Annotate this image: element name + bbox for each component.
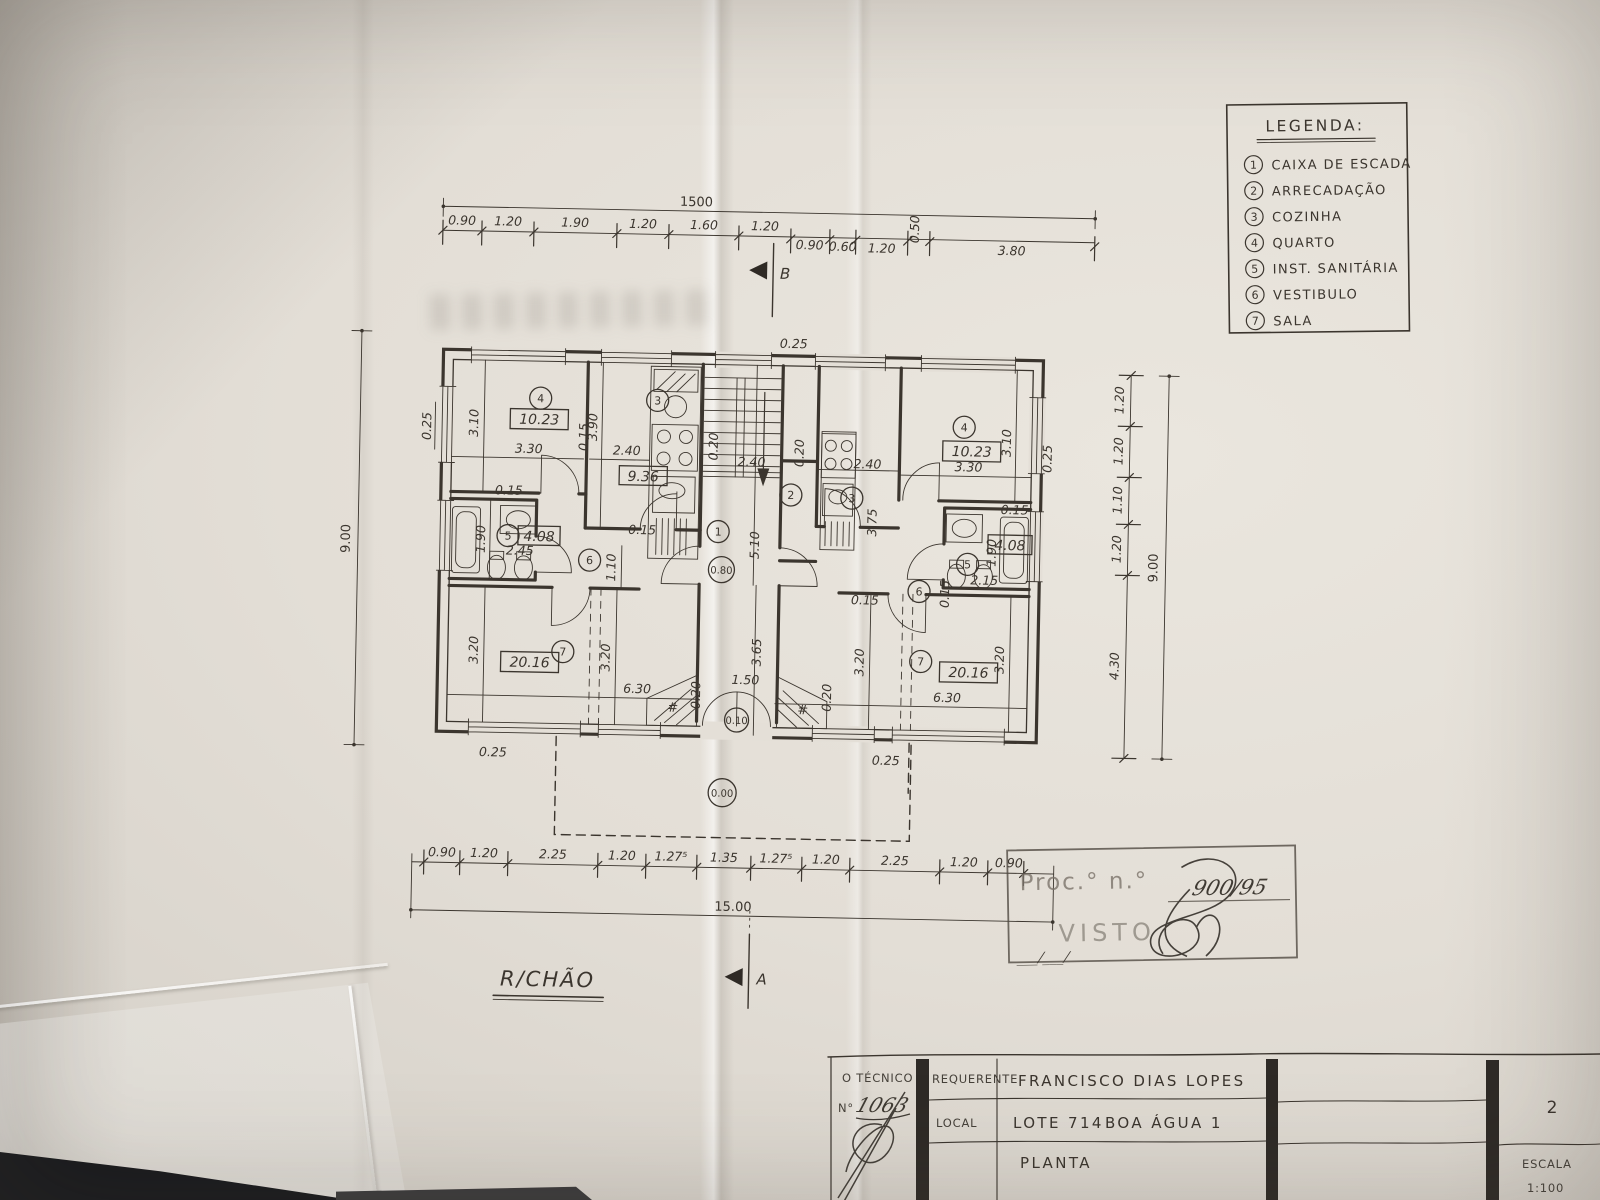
- room-number: 3: [654, 394, 661, 407]
- dim-total: 9.00: [1146, 553, 1162, 582]
- requester-value: FRANCISCO DIAS LOPES: [1018, 1072, 1246, 1090]
- dim-seg: 1.20: [608, 848, 636, 864]
- dim-seg: 0.90: [995, 855, 1023, 871]
- binding-bar: [916, 1059, 929, 1200]
- dim: 1.90: [984, 539, 1000, 567]
- dim: 1.50: [731, 672, 759, 688]
- legend-item-num: 4: [1251, 237, 1258, 250]
- dim: 3.20: [597, 643, 613, 671]
- section-arrow-icon: [749, 261, 767, 279]
- hatch-mark: #: [797, 703, 808, 718]
- section-marker-a: A: [724, 904, 768, 1009]
- legend-item-label: QUARTO: [1272, 236, 1335, 252]
- room-area: 10.23: [519, 412, 559, 429]
- dim: 3.30: [515, 441, 543, 457]
- dim: 3.30: [954, 459, 982, 475]
- sheet-number: 2: [1547, 1098, 1558, 1118]
- dim-chain-right: 1.20 1.20 1.10 1.20 4.30 9.00: [1105, 371, 1179, 763]
- room-number: 6: [915, 585, 922, 598]
- dim: 3.75: [864, 508, 880, 536]
- approval-stamp: Proc.° n.° 900/95 VISTO ___/___/: [1007, 845, 1297, 966]
- local-label: LOCAL: [936, 1116, 977, 1130]
- room-number: 3: [848, 492, 855, 505]
- wall-dim: 0.15: [851, 592, 879, 608]
- wall-dim: 0.25: [479, 744, 507, 760]
- level-step: 0.10: [725, 716, 747, 727]
- dim: 2.40: [613, 443, 641, 459]
- legend: LEGENDA: 1 CAIXA DE ESCADA 2 ARRECADAÇÃO…: [1227, 103, 1414, 333]
- binding-bar: [1486, 1060, 1499, 1200]
- legend-item-num: 1: [1250, 159, 1257, 172]
- dim: 2.40: [737, 454, 765, 470]
- dim-seg: 1.60: [690, 217, 718, 233]
- dim-seg: 0.50: [907, 215, 923, 243]
- dim: 0.20: [688, 681, 704, 709]
- dim-seg: 1.20: [1109, 535, 1125, 563]
- dim: 2.45: [506, 543, 534, 559]
- legend-items: 1 CAIXA DE ESCADA 2 ARRECADAÇÃO 3 COZINH…: [1244, 154, 1413, 330]
- dim-seg: 1.35: [710, 849, 738, 865]
- legend-item-num: 7: [1252, 315, 1259, 328]
- level-landing: 0.80: [710, 565, 732, 576]
- dim-total: 1500: [680, 195, 713, 211]
- dim-seg: 1.27⁵: [759, 850, 792, 866]
- room-number: 7: [559, 646, 566, 659]
- wall-dim: 0.15: [937, 580, 953, 608]
- dim: 3.10: [999, 429, 1015, 457]
- wall-dim: 0.25: [780, 336, 808, 352]
- dim-seg: 1.20: [1111, 386, 1127, 414]
- section-marker-b: B: [748, 243, 791, 317]
- local-value-2: BOA ÁGUA 1: [1105, 1113, 1223, 1132]
- room-area: 20.16: [509, 655, 549, 672]
- stamp-proc-number: 900/95: [1189, 875, 1269, 901]
- stamp-date-line: ___/___/: [1016, 949, 1071, 966]
- hatch-mark: #: [667, 701, 678, 716]
- floor-label: R/CHÃO: [500, 964, 595, 992]
- room-number: 4: [961, 421, 968, 434]
- dim-seg: 1.20: [1111, 437, 1127, 465]
- legend-item-label: CAIXA DE ESCADA: [1271, 157, 1411, 174]
- binding-bar: [1266, 1059, 1278, 1200]
- dim-seg: 0.90: [428, 844, 456, 860]
- dim-seg: 0.60: [829, 239, 857, 255]
- local-value: LOTE 714: [1013, 1114, 1104, 1132]
- room-number: 6: [586, 554, 593, 567]
- section-label: A: [755, 970, 767, 988]
- stamp-visto-label: VISTO: [1058, 918, 1156, 948]
- dim-seg: 2.25: [539, 846, 567, 862]
- dim-seg: 0.90: [796, 237, 824, 253]
- dim-seg: 0.90: [448, 212, 476, 228]
- legend-item-num: 6: [1251, 289, 1258, 302]
- room-markers: 4 3 5 6 7 1 0.80 2 3 4 5 6 7 0.10 0.00: [492, 386, 982, 811]
- dim: 2.40: [853, 456, 881, 472]
- legend-item-num: 3: [1251, 211, 1258, 224]
- scale-value: 1:100: [1527, 1181, 1564, 1195]
- scanned-floor-plan-photo: # # 4 3 5: [0, 0, 1600, 1200]
- legend-item-num: 5: [1251, 263, 1258, 276]
- dim-seg: 3.80: [998, 243, 1026, 259]
- legend-item-num: 2: [1250, 185, 1257, 198]
- dim: 2.15: [970, 572, 998, 588]
- wall-dim: 0.25: [419, 412, 435, 440]
- dim: 6.30: [623, 681, 651, 697]
- stamp-signature: [1149, 859, 1237, 957]
- technician-label: O TÉCNICO: [842, 1070, 913, 1085]
- wall-dim: 0.15: [576, 423, 592, 451]
- dim: 3.10: [466, 409, 482, 437]
- dim: 0.20: [819, 684, 835, 712]
- legend-item-label: VESTIBULO: [1273, 287, 1358, 303]
- floor-title: R/CHÃO: [493, 964, 604, 1001]
- legend-item-label: ARRECADAÇÃO: [1272, 182, 1387, 199]
- wall-dim: 0.25: [872, 753, 900, 769]
- drawing-svg: # # 4 3 5: [0, 0, 1600, 1200]
- dim-seg: 1.20: [950, 854, 978, 870]
- dim: 3.20: [991, 646, 1007, 674]
- dim-seg: 1.20: [470, 845, 498, 861]
- dim-seg: 1.20: [751, 218, 779, 234]
- room-number: 4: [537, 392, 544, 405]
- section-arrow-icon: [724, 968, 742, 986]
- dim: 0.20: [791, 439, 807, 467]
- wall-dim: 0.15: [1001, 502, 1029, 518]
- room-number: 5: [504, 529, 511, 542]
- title-block: O TÉCNICO N° 1063 REQUERENTE FRANCISCO D…: [828, 1053, 1600, 1200]
- dim-seg: 1.20: [494, 213, 522, 229]
- dim: 1.10: [603, 553, 619, 581]
- scale-label: ESCALA: [1522, 1157, 1572, 1171]
- room-area: 9.36: [627, 469, 659, 486]
- dim-seg: 1.20: [868, 240, 896, 256]
- dim-chain-bottom: 0.90 1.20 2.25 1.20 1.27⁵ 1.35 1.27⁵ 1.2…: [409, 844, 1056, 930]
- dim: 6.30: [933, 690, 961, 706]
- staircase: [703, 377, 781, 486]
- legend-title: LEGENDA:: [1265, 116, 1364, 135]
- dim-chain-top: 1500 0.90 1.20 1.90 1.20 1.60 1.20 0.90 …: [439, 190, 1100, 261]
- dim-total: 9.00: [339, 524, 355, 553]
- wall-dim: 0.25: [1039, 445, 1055, 473]
- dim-seg: 1.20: [812, 851, 840, 867]
- room-area: 20.16: [948, 665, 988, 682]
- dim: 3.20: [466, 636, 482, 664]
- requester-label: REQUERENTE: [932, 1072, 1018, 1086]
- dim-seg: 1.20: [629, 216, 657, 232]
- dim: 5.10: [747, 531, 763, 559]
- wall-dim: 0.15: [495, 482, 523, 498]
- room-number: 1: [715, 526, 722, 539]
- section-label: B: [780, 265, 791, 283]
- wall-dim: 0.15: [628, 522, 656, 538]
- room-number: 2: [787, 489, 794, 502]
- dim-seg: 2.25: [881, 853, 909, 869]
- dim-seg: 1.90: [561, 215, 589, 231]
- drawing-type: PLANTA: [1020, 1154, 1092, 1172]
- dim-total: 15.00: [714, 900, 751, 916]
- dim: 1.90: [473, 525, 489, 553]
- technician-no-label: N°: [838, 1101, 854, 1115]
- room-number: 5: [964, 558, 971, 571]
- dim-seg: 4.30: [1106, 652, 1122, 680]
- level-ground: 0.00: [711, 788, 733, 799]
- dim-chain-left: 9.00: [335, 329, 372, 747]
- legend-item-label: SALA: [1273, 314, 1313, 329]
- dim: 3.65: [749, 638, 765, 666]
- dim: 0.20: [706, 432, 722, 460]
- dim-seg: 1.10: [1110, 486, 1126, 514]
- dim: 3.20: [851, 648, 867, 676]
- stamp-proc-label: Proc.° n.°: [1019, 868, 1148, 896]
- legend-item-label: INST. SANITÁRIA: [1273, 260, 1399, 278]
- legend-item-label: COZINHA: [1272, 210, 1342, 226]
- dim-seg: 1.27⁵: [654, 848, 687, 864]
- room-number: 7: [917, 655, 924, 668]
- plan-dimension-texts: 3.30 3.10 2.40 3.90 1.90 2.45 1.10 3.20 …: [413, 329, 1057, 771]
